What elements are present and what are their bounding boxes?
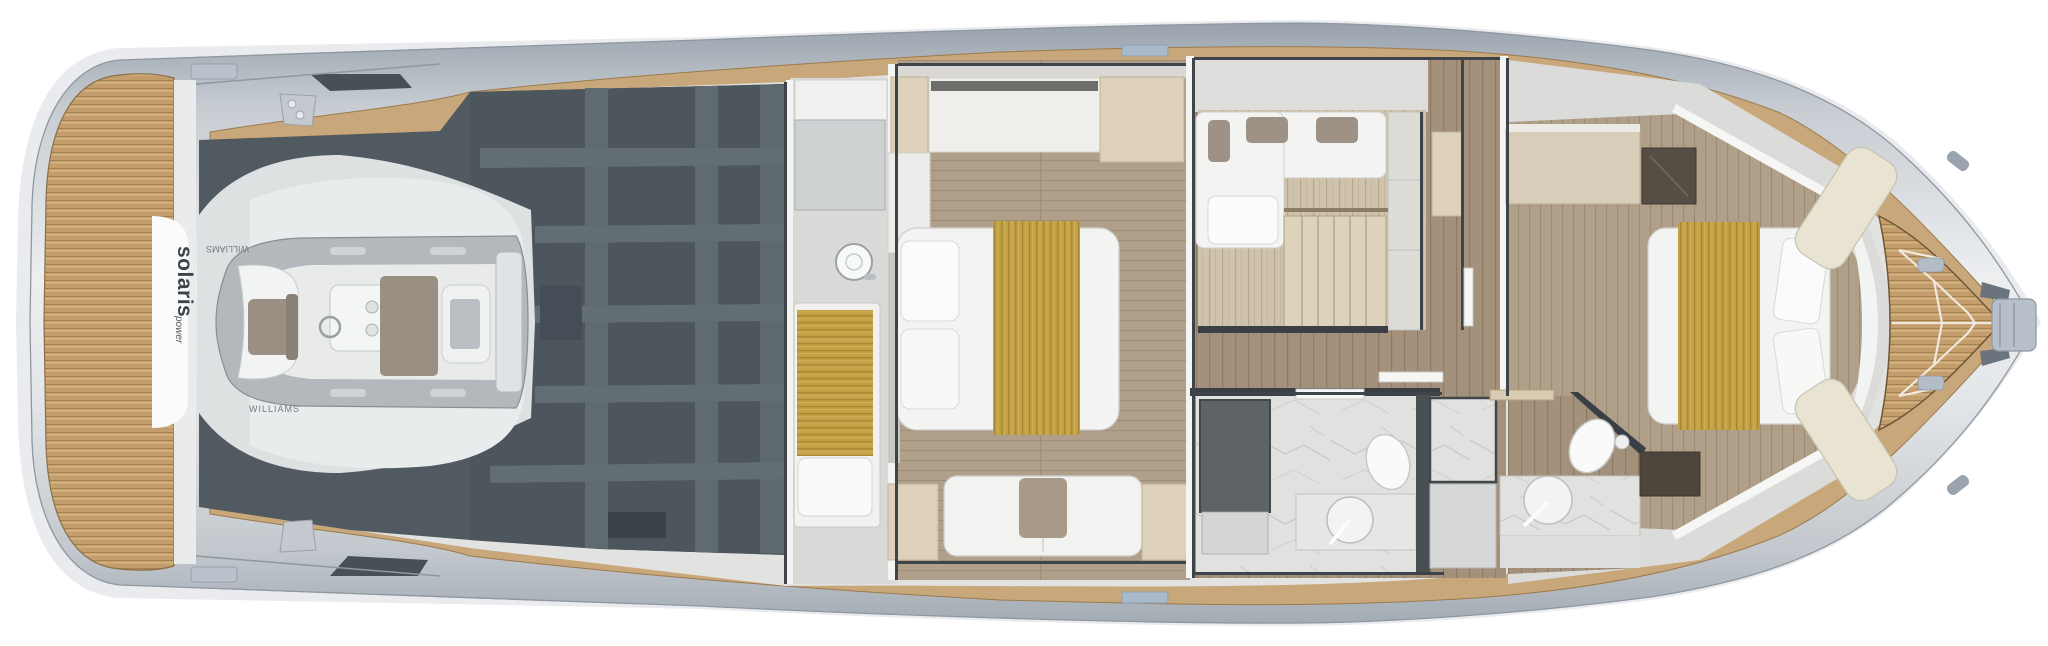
svg-text:WILLIAMS: WILLIAMS [206,244,249,254]
svg-text:solaris: solaris [173,246,196,317]
svg-text:WILLIAMS: WILLIAMS [249,404,300,414]
svg-text:power: power [173,315,184,344]
